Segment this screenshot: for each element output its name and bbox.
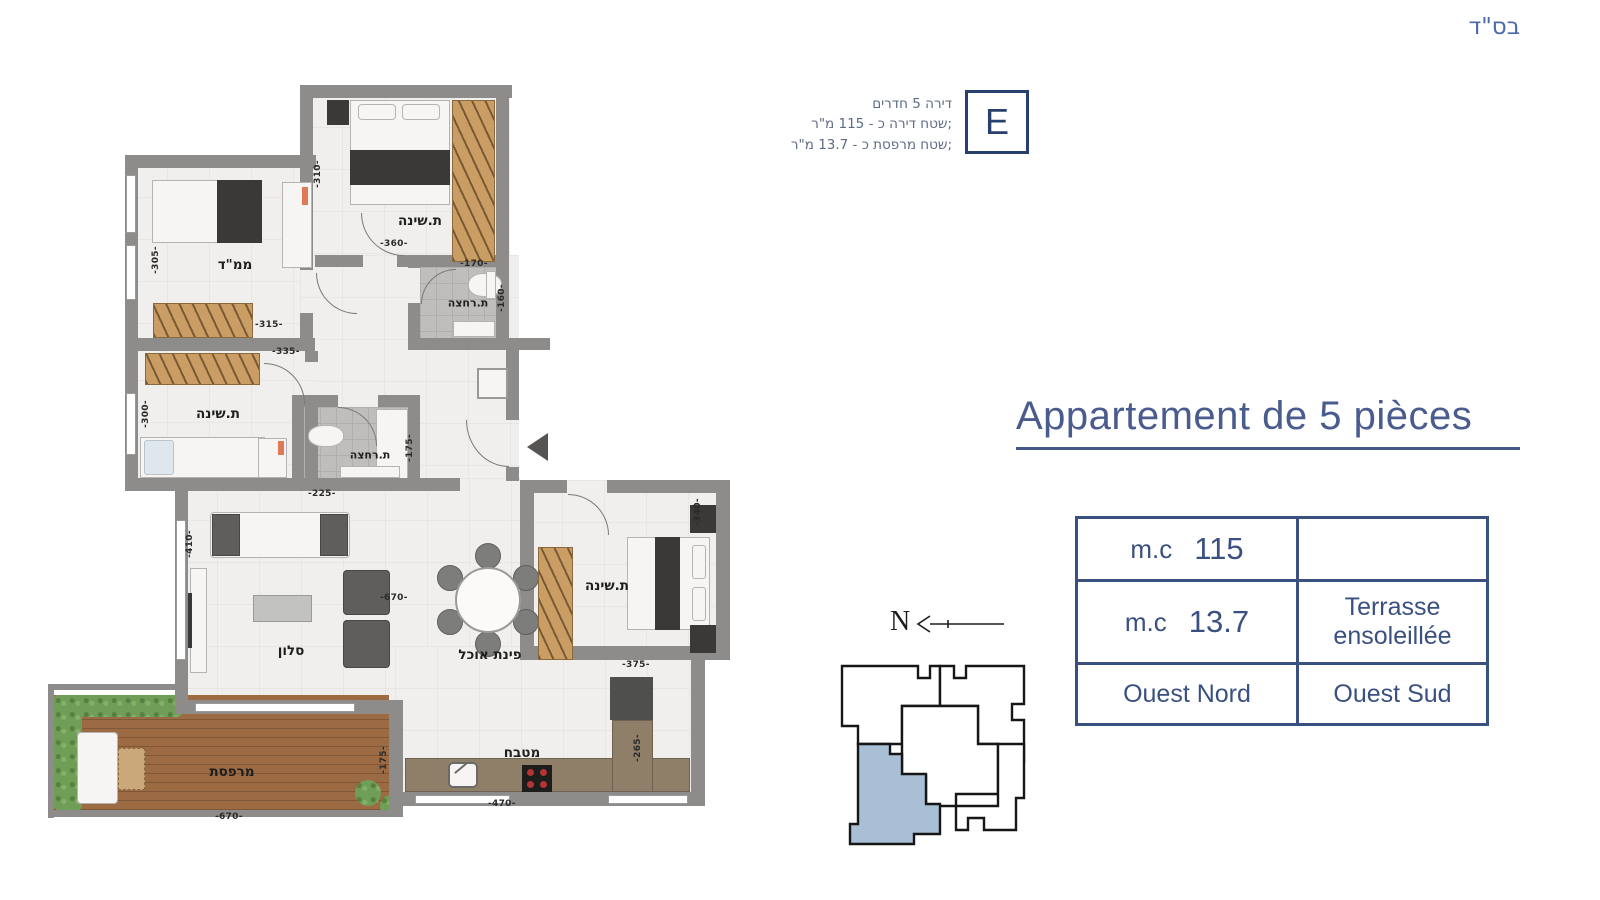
fridge: [610, 677, 653, 720]
desk-accent: [302, 187, 308, 205]
area-value: 115: [1194, 531, 1243, 567]
area-value: 13.7: [1189, 604, 1249, 640]
table-row: m.c 115: [1078, 519, 1486, 582]
window: [126, 175, 136, 233]
dim-kitchen-h: -265-: [633, 734, 643, 762]
dim-bath-mid-w: -225-: [308, 489, 336, 499]
note-line: Terrasse: [1345, 593, 1441, 622]
stove-burner: [540, 769, 547, 776]
wall: [408, 338, 550, 350]
dim-terrace-w: -670-: [215, 812, 243, 822]
room-label-bath-top: ת.רחצה: [448, 297, 489, 310]
closet: [153, 303, 253, 338]
window: [126, 393, 136, 455]
pillow: [692, 545, 706, 579]
unit-letter-badge: E: [965, 90, 1029, 154]
unit-info-line-3: שטח מרפסת כ - 13.7 מ"ר;: [730, 135, 952, 155]
window: [608, 795, 688, 804]
orientation-left: Ouest Nord: [1123, 680, 1251, 709]
closet: [145, 353, 260, 385]
dim-bedroom-left-h: -300-: [141, 400, 151, 428]
wall: [315, 255, 363, 267]
stove-burner: [527, 781, 534, 788]
sink-vanity: [340, 466, 400, 478]
wall: [607, 480, 730, 493]
sofa-cushion: [212, 514, 240, 556]
terrace-rug: [118, 748, 145, 790]
building-key-plan: [828, 648, 1033, 848]
bed-blanket: [217, 180, 262, 243]
table-cell: m.c 115: [1078, 519, 1299, 579]
wall: [408, 255, 420, 268]
orientation-right: Ouest Sud: [1333, 680, 1451, 709]
unit-label: m.c: [1130, 534, 1172, 565]
dim-bedroom-top-w: -360-: [380, 239, 408, 249]
coffee-table: [253, 595, 312, 622]
stove: [522, 765, 552, 792]
pillow: [144, 440, 174, 475]
stove-burner: [527, 769, 534, 776]
dim-bedroom-right-h: -340-: [693, 498, 703, 526]
dim-salon-w: -670-: [380, 593, 408, 603]
room-label-mamad: ממ"ד: [218, 257, 253, 273]
dining-chair: [475, 543, 501, 569]
wall: [300, 85, 512, 98]
dim-bath-mid-h: -175-: [405, 434, 415, 462]
wall: [292, 395, 304, 490]
dim-mamad-w: -315-: [255, 320, 283, 330]
north-label: N: [890, 606, 910, 638]
closet: [452, 100, 495, 262]
wall: [691, 660, 705, 806]
wall: [716, 480, 730, 660]
entrance-arrow-icon: [527, 433, 548, 461]
dim-kitchen-w: -470-: [488, 799, 516, 809]
room-label-kitchen: מטבח: [504, 745, 540, 761]
room-label-bath-mid: ת.רחצה: [350, 449, 391, 462]
wall: [125, 155, 316, 168]
tv: [188, 593, 192, 648]
armchair: [343, 620, 390, 668]
table-row: Ouest Nord Ouest Sud: [1078, 665, 1486, 723]
pillow: [358, 104, 396, 120]
sink-vanity: [453, 321, 495, 337]
terrace-slider-door: [195, 703, 355, 712]
dim-terrace-h: -175-: [379, 746, 389, 774]
dining-table: [455, 567, 521, 633]
room-label-bedroom-right: ת.שינה: [585, 578, 629, 594]
wall: [48, 684, 54, 818]
table-cell: m.c 13.7: [1078, 582, 1299, 662]
room-label-bedroom-left: ת.שינה: [196, 406, 240, 422]
closet: [538, 547, 573, 660]
dim-salon-h: -410-: [185, 530, 195, 558]
table-cell: Ouest Nord: [1078, 665, 1299, 723]
wall: [305, 351, 318, 362]
unit-info-line-1: דירה 5 חדרים: [730, 94, 952, 114]
toilet-tank: [486, 271, 496, 299]
table-cell: Terrasse ensoleillée: [1299, 582, 1486, 662]
stove-burner: [540, 781, 547, 788]
page: ממ"ד ת.שינה ת.רחצה ת.שינה ת.רחצה סלון פי…: [0, 0, 1600, 900]
dim-bedroom-top-h: -310-: [313, 160, 323, 188]
wall: [389, 714, 403, 814]
table-row: m.c 13.7 Terrasse ensoleillée: [1078, 582, 1486, 665]
bsd-text: בס"ד: [1420, 14, 1520, 40]
nightstand: [327, 100, 349, 125]
unit-info-text: דירה 5 חדרים שטח דירה כ - 115 מ"ר; שטח מ…: [730, 94, 952, 155]
table-cell: [1299, 519, 1486, 579]
sofa-cushion: [320, 514, 348, 556]
dim-bedroom-left-w: -335-: [272, 347, 300, 357]
pillow: [402, 104, 440, 120]
unit-info-line-2: שטח דירה כ - 115 מ"ר;: [730, 114, 952, 134]
page-title: Appartement de 5 pièces: [1016, 394, 1520, 450]
room-label-terrace: מרפסת: [209, 764, 254, 780]
dim-bath-top-h: -160-: [497, 284, 507, 312]
tv-console: [190, 568, 207, 673]
unit-letter: E: [985, 101, 1009, 143]
note-line: ensoleillée: [1333, 622, 1451, 651]
pillow: [692, 587, 706, 621]
nightstand: [690, 625, 716, 653]
room-label-dining: פינת אוכל: [458, 647, 521, 663]
room-label-salon: סלון: [278, 643, 305, 659]
compass: N: [890, 604, 1010, 644]
terrace-sofa: [77, 732, 118, 804]
floor-plan: ממ"ד ת.שינה ת.רחצה ת.שינה ת.רחצה סלון פי…: [40, 83, 740, 833]
bed-blanket: [655, 537, 680, 630]
window: [126, 245, 136, 300]
info-table: m.c 115 m.c 13.7 Terrasse ensoleillée Ou…: [1075, 516, 1489, 726]
dim-bath-top-w: -170-: [460, 259, 488, 269]
terrace-plants-top: [54, 695, 182, 717]
shower-stall: [477, 368, 508, 399]
room-label-bedroom-top: ת.שינה: [398, 213, 442, 229]
wall: [48, 684, 180, 690]
table-cell: Ouest Sud: [1299, 665, 1486, 723]
wall: [520, 480, 567, 493]
north-arrow-icon: [916, 612, 1008, 636]
terrace-bush-1: [355, 780, 381, 806]
bed-blanket: [350, 150, 450, 185]
unit-label: m.c: [1125, 607, 1167, 638]
desk-accent: [278, 441, 284, 455]
dim-mamad-h: -305-: [151, 246, 161, 274]
wall: [506, 467, 519, 481]
dim-bedroom-right-w: -375-: [622, 660, 650, 670]
